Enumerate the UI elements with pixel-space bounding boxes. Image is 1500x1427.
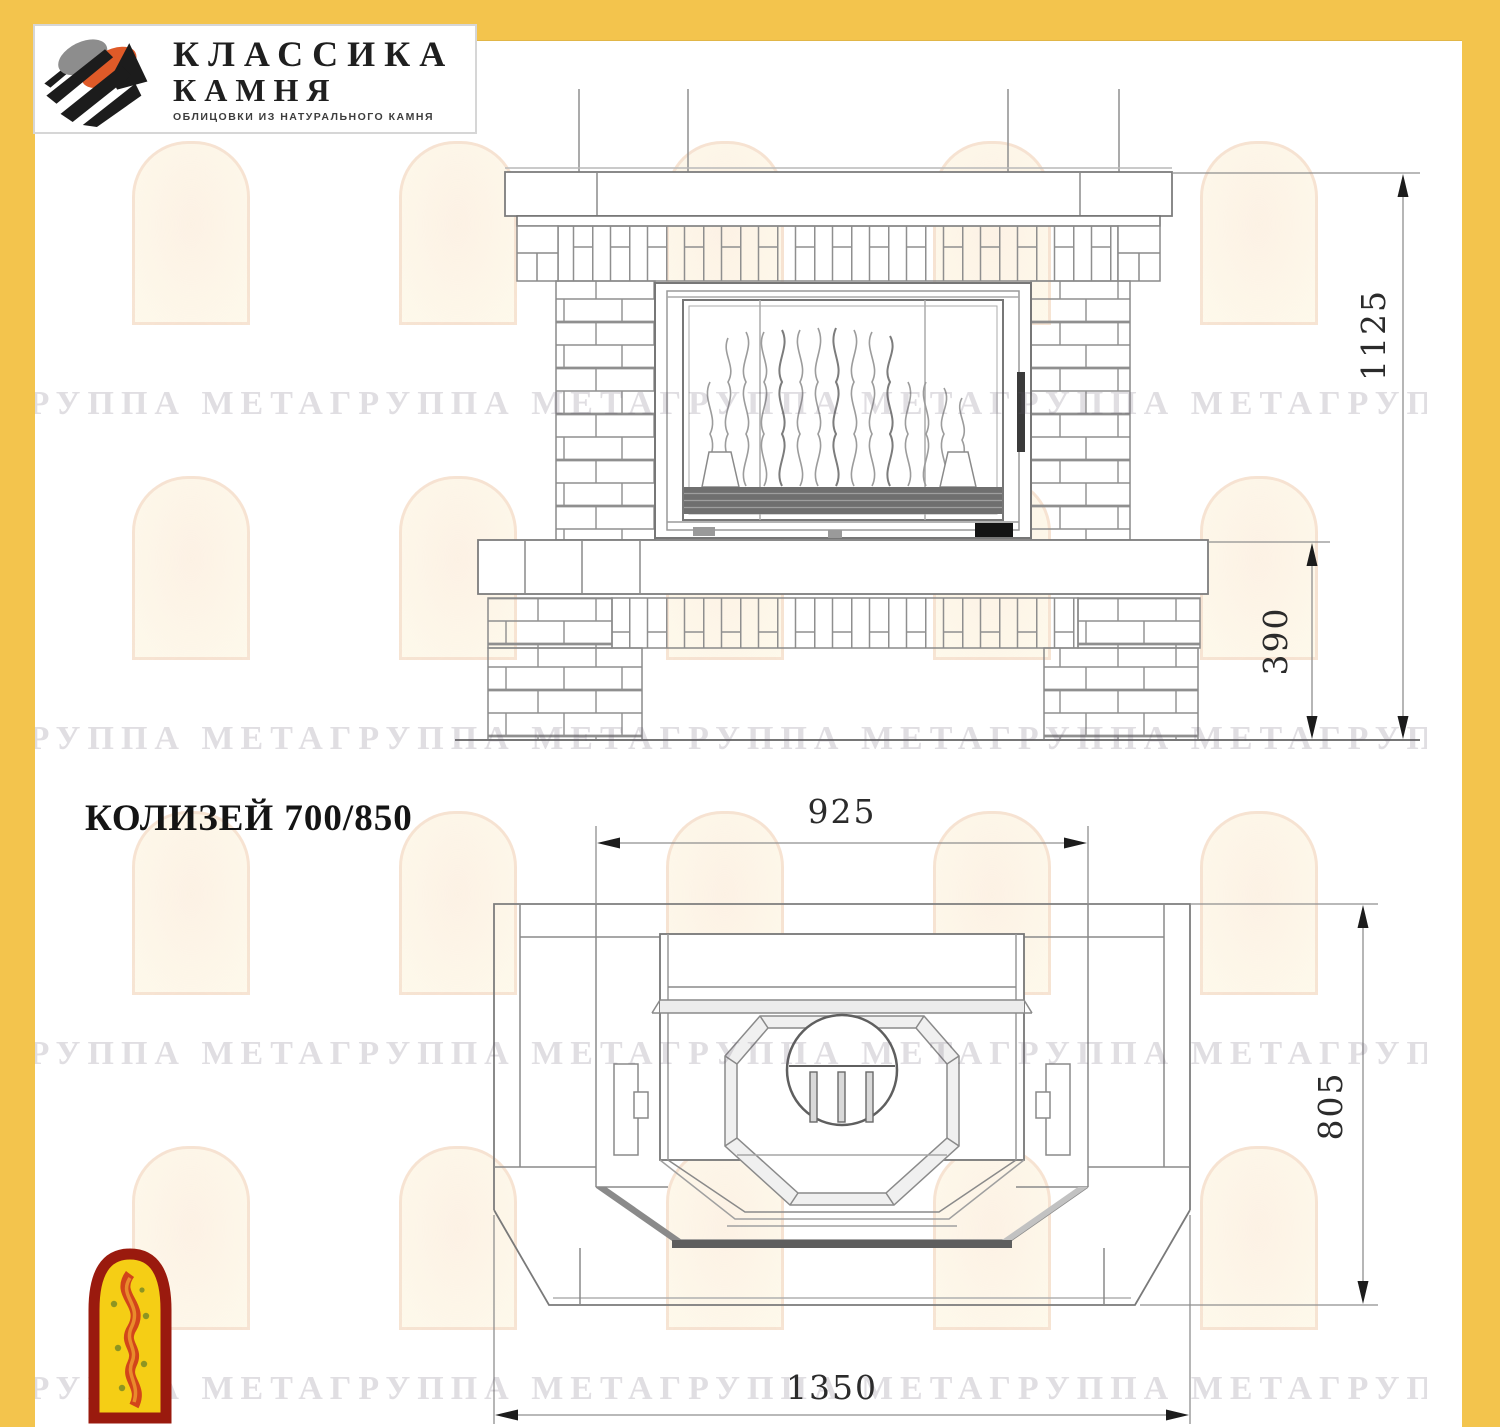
dimension-arrows [1307,174,1409,739]
frame-border-left [0,0,35,1427]
dim-firebox-width: 925 [772,792,912,828]
dim-hearth-height: 390 [1256,591,1292,691]
dim-total-height: 1125 [1354,265,1390,405]
arch-flame-logo-icon [86,1246,174,1424]
stone-slabs-logo-icon [41,31,169,127]
dim-depth: 805 [1311,1056,1347,1156]
company-tagline: ОБЛИЦОВКИ ИЗ НАТУРАЛЬНОГО КАМНЯ [173,112,454,123]
dim-total-width: 1350 [752,1368,912,1404]
frame-border-right [1462,0,1500,1427]
company-name-line1: КЛАССИКА [173,36,454,72]
model-title: КОЛИЗЕЙ 700/850 [85,797,413,840]
company-name-line2: КАМНЯ [173,74,454,106]
plan-view [494,904,1190,1305]
spec-sheet: ГРУППА МЕТАГРУППА МЕТАГРУППА МЕТАГРУППА … [0,0,1500,1427]
front-elevation-dimensions [1172,173,1420,739]
technical-drawing [0,0,1500,1427]
company-logo: КЛАССИКА КАМНЯ ОБЛИЦОВКИ ИЗ НАТУРАЛЬНОГО… [33,24,477,134]
